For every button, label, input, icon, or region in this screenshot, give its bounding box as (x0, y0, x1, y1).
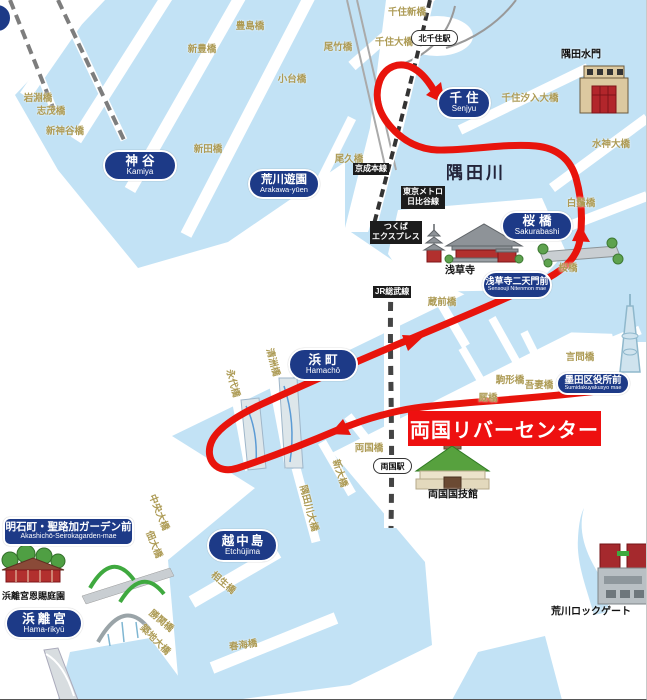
bridge-label: 千住汐入大橋 (501, 90, 558, 104)
station-pill-hamacho: 浜町 Hamachō (288, 348, 358, 381)
bridge-label: 桜橋 (558, 260, 577, 274)
bridge-label: 吾妻橋 (525, 377, 554, 391)
station-pill-arakawa-yuen: 荒川遊園 Arakawa-yūen (248, 169, 320, 199)
bridge-label: 新豊橋 (188, 41, 217, 55)
railline-text: エクスプレス (372, 232, 420, 242)
station-en: Akashichō-Seirokagarden-mae (20, 533, 116, 540)
station-pill-sensoji-nitenmon-mae: 浅草寺二天門前 Sensouji Nitenmon mae (482, 271, 552, 299)
bridge-label: 新神谷橋 (46, 123, 84, 137)
ryogoku-kokugikan-icon (416, 443, 489, 489)
arakawa-lockgate-icon (598, 544, 647, 604)
landmark-label-hamarikyu-garden: 浜離宮恩賜庭園 (0, 589, 67, 602)
station-en: Arakawa-yūen (260, 186, 308, 194)
bridge-label: 志茂橋 (37, 103, 66, 117)
station-ja: 神谷 (125, 155, 158, 168)
river-name-label: 隅田川 (446, 159, 506, 184)
station-ja: 越中島 (222, 535, 266, 548)
station-pill-sumidakuyakusho-mae: 墨田区役所前 Sumidakuyakusyo mae (556, 372, 630, 395)
landmark-label-kokugikan: 両国国技館 (428, 486, 478, 501)
station-pill-hamarikyu: 浜離宮 Hama-rikyū (5, 608, 83, 639)
ryogoku-river-center-highlight: 両国リバーセンター (408, 411, 601, 446)
partial-station-marker (0, 4, 11, 32)
bridge-label: 千住大橋 (375, 34, 413, 48)
bridge-label: 岩淵橋 (24, 90, 53, 104)
green-arch-bridges-icon (82, 567, 174, 604)
bridge-label: 両国橋 (355, 440, 384, 454)
railline-keisei: 京成本線 (353, 163, 389, 175)
bridge-label: 言問橋 (566, 349, 595, 363)
station-ja: 浜町 (308, 354, 341, 367)
station-ja: 浜離宮 (22, 613, 69, 626)
station-en: Sakurabashi (515, 228, 559, 236)
sumida-watergate-icon (580, 66, 628, 113)
station-ja: 明石町・聖路加ガーデン前 (6, 522, 132, 533)
station-pill-senju: 千住 Senjyu (437, 87, 491, 119)
railline-jr-sobu: JR総武線 (373, 286, 411, 298)
railline-text: つくば (372, 222, 420, 232)
bridge-label: 小台橋 (278, 71, 307, 85)
landmark-label-suidamon: 隅田水門 (561, 46, 601, 61)
bridge-label: 白鬚橋 (567, 195, 596, 209)
landmark-label-lockgate: 荒川ロックゲート (551, 603, 631, 618)
landmark-label-sensoji: 浅草寺 (445, 262, 475, 277)
station-pill-kamiya: 神谷 Kamiya (103, 150, 177, 181)
station-pill-sakurabashi: 桜橋 Sakurabashi (501, 211, 573, 241)
hamarikyu-garden-icon (2, 545, 65, 582)
bridge-label: 蔵前橋 (428, 294, 457, 308)
highlight-text: 両国リバーセンター (410, 414, 599, 443)
station-en: Etchūjima (225, 548, 260, 556)
station-en: Hama-rikyū (24, 626, 65, 634)
railline-hibiya: 東京メトロ 日比谷線 (401, 186, 445, 209)
station-pill-etchujima: 越中島 Etchūjima (207, 529, 278, 562)
bridge-label: 尾竹橋 (324, 39, 353, 53)
railline-text: 京成本線 (355, 164, 387, 174)
bridge-label: 駒形橋 (496, 372, 525, 386)
bridge-label: 千住新橋 (388, 4, 426, 18)
station-en: Kamiya (127, 168, 154, 176)
bridge-label: 新田橋 (194, 141, 223, 155)
station-en: Sensouji Nitenmon mae (488, 287, 546, 293)
railline-text: 日比谷線 (403, 197, 443, 207)
railline-tsukuba-express: つくば エクスプレス (370, 221, 422, 244)
railline-text: JR総武線 (375, 287, 409, 297)
station-sign-text: 両国駅 (381, 461, 405, 472)
station-sign-ryogoku: 両国駅 (373, 458, 412, 474)
station-pill-akashicho-seiroka-garden-mae: 明石町・聖路加ガーデン前 Akashichō-Seirokagarden-mae (3, 517, 134, 546)
bridge-label: 水神大橋 (592, 136, 630, 150)
bridge-label: 厩橋 (478, 390, 497, 404)
station-sign-text: 北千住駅 (419, 33, 451, 44)
bridge-label: 豊島橋 (236, 18, 265, 32)
station-sign-kitasenju: 北千住駅 (411, 30, 458, 46)
map-canvas: 豊島橋 新豊橋 小台橋 岩淵橋 志茂橋 新神谷橋 新田橋 尾竹橋 千住新橋 千住… (0, 0, 647, 700)
station-en: Sumidakuyakusyo mae (565, 386, 622, 392)
station-en: Senjyu (452, 105, 476, 113)
railline-text: 東京メトロ (403, 187, 443, 197)
station-en: Hamachō (306, 367, 340, 375)
